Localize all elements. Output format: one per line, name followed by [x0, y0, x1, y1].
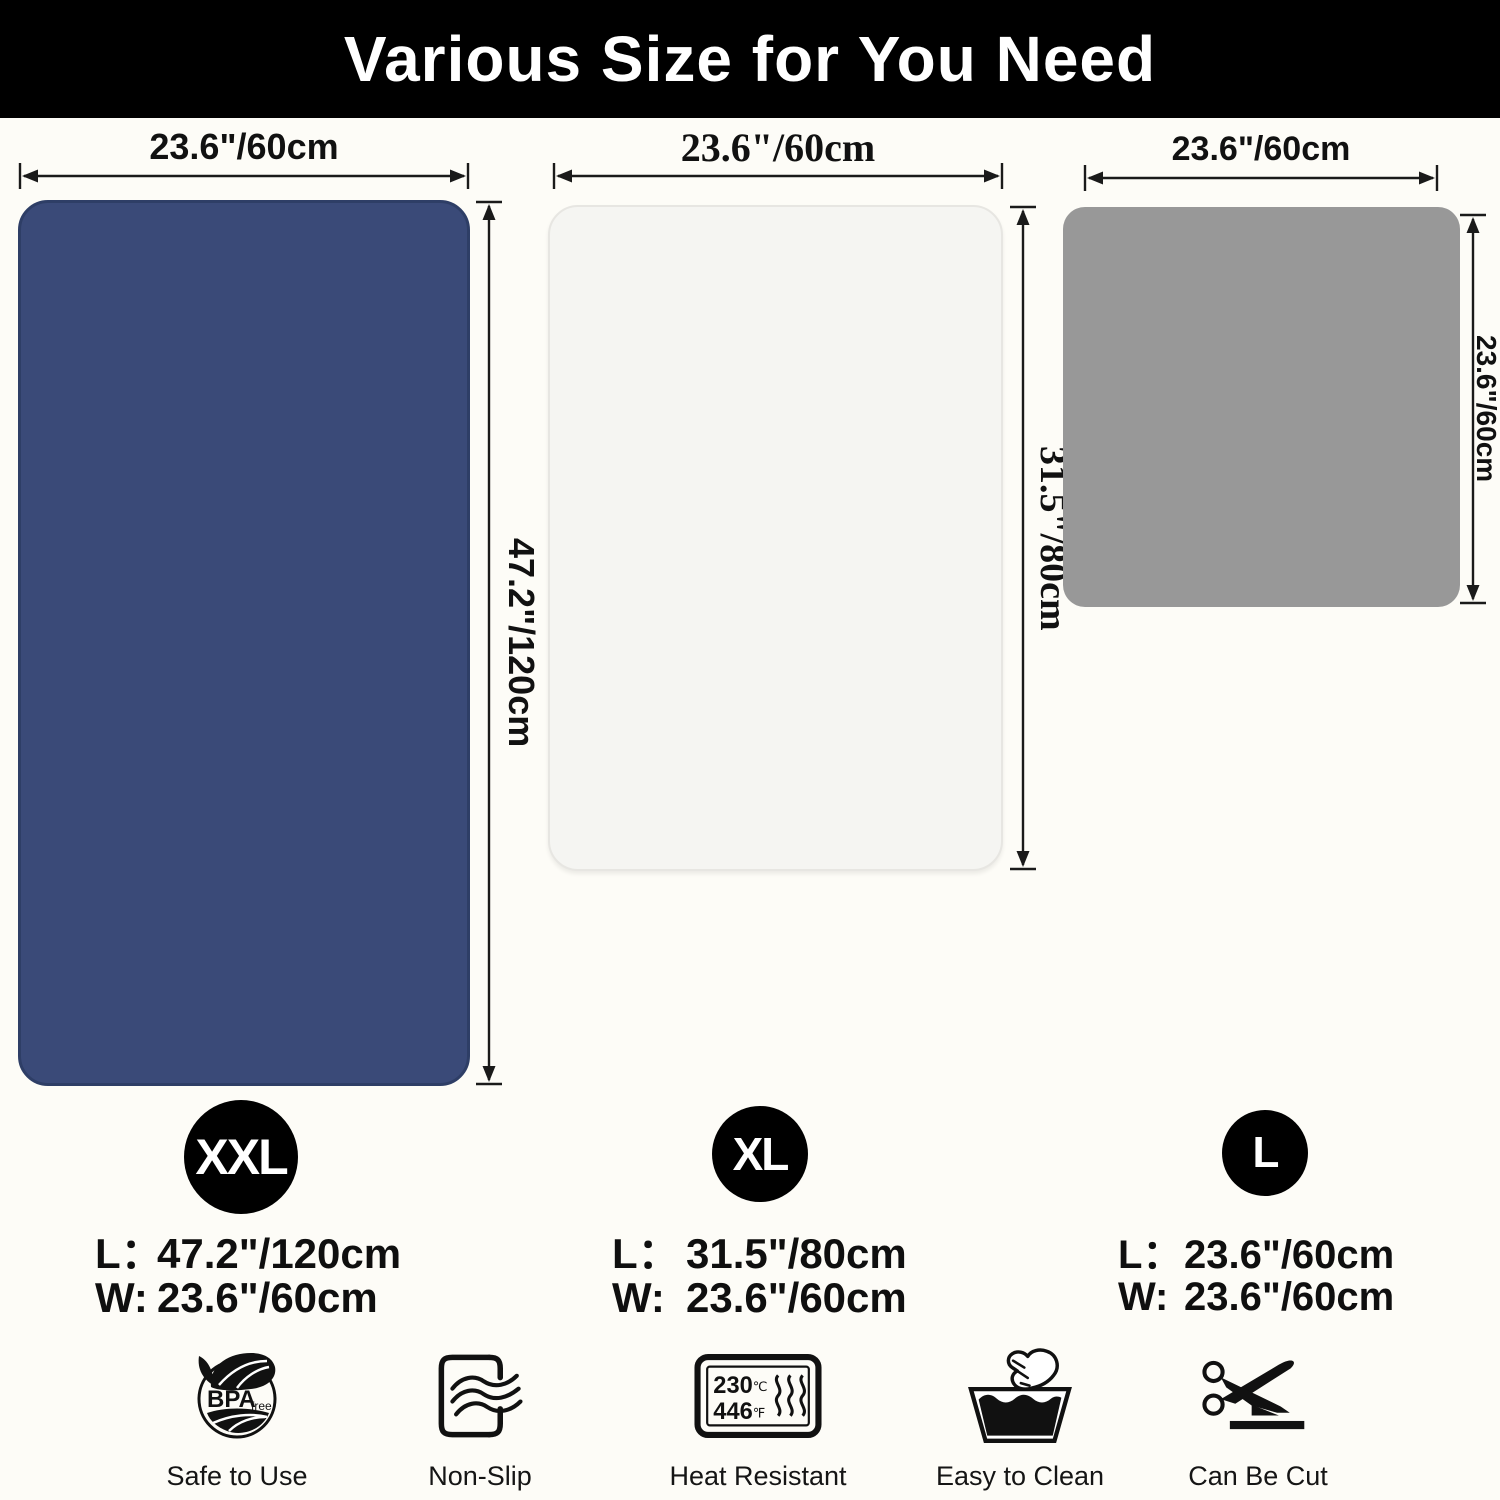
xxl-mat: [18, 200, 470, 1086]
l-height-dimension-label: 23.6"/60cm: [1472, 213, 1500, 605]
xl-mat: [548, 205, 1003, 871]
l-width-arrow: [1083, 165, 1439, 191]
l-spec-length: L： 23.6"/60cm: [1118, 1222, 1394, 1280]
width-value: 23.6"/60cm: [1184, 1275, 1394, 1320]
xxl-height-arrow: [476, 200, 502, 1086]
xl-badge: XL: [712, 1106, 808, 1202]
heat-resistant-icon: 230 ℃ 446 ℉: [692, 1350, 824, 1442]
length-label: L：: [1118, 1222, 1184, 1280]
length-label: L：: [612, 1220, 686, 1281]
l-spec-width: W: 23.6"/60cm: [1118, 1275, 1394, 1320]
xl-badge-text: XL: [733, 1127, 788, 1181]
easy-to-clean-icon: [964, 1344, 1076, 1448]
temp-fahrenheit-value: 446: [713, 1399, 752, 1425]
bpa-text: BPA: [207, 1386, 256, 1413]
length-value: 31.5"/80cm: [686, 1230, 907, 1278]
heat-resistant-icon-box: 230 ℃ 446 ℉: [640, 1338, 876, 1453]
page-title: Various Size for You Need: [344, 22, 1156, 96]
xl-spec-width: W: 23.6"/60cm: [612, 1274, 907, 1322]
xl-width-arrow: [552, 163, 1004, 189]
feature-label-non-slip: Non-Slip: [370, 1461, 590, 1492]
width-label: W:: [1118, 1275, 1184, 1320]
xxl-badge: XXL: [184, 1100, 298, 1214]
l-mat: [1063, 207, 1460, 607]
feature-can-be-cut: Can Be Cut: [1148, 1338, 1368, 1492]
non-slip-icon-box: [370, 1338, 590, 1453]
temp-celsius-unit: ℃: [753, 1379, 768, 1394]
title-banner: Various Size for You Need: [0, 0, 1500, 118]
feature-label-safe-to-use: Safe to Use: [127, 1461, 347, 1492]
bpa-free-icon: BPA free: [185, 1343, 290, 1448]
length-value: 47.2"/120cm: [157, 1230, 401, 1278]
l-width-dimension-label: 23.6"/60cm: [1083, 130, 1439, 169]
feature-label-can-be-cut: Can Be Cut: [1148, 1461, 1368, 1492]
length-value: 23.6"/60cm: [1184, 1233, 1394, 1278]
width-value: 23.6"/60cm: [157, 1274, 378, 1322]
l-badge-text: L: [1253, 1128, 1278, 1178]
xl-spec-length: L： 31.5"/80cm: [612, 1220, 907, 1281]
feature-heat-resistant: 230 ℃ 446 ℉ Heat Resistant: [640, 1338, 876, 1492]
temp-celsius-value: 230: [713, 1372, 752, 1398]
width-value: 23.6"/60cm: [686, 1274, 907, 1322]
bpa-free-icon-box: BPA free: [127, 1338, 347, 1453]
width-label: W:: [95, 1274, 157, 1322]
length-label: L：: [95, 1220, 157, 1281]
xxl-spec-width: W: 23.6"/60cm: [95, 1274, 378, 1322]
width-label: W:: [612, 1274, 686, 1322]
can-be-cut-icon: [1199, 1348, 1317, 1444]
easy-to-clean-icon-box: [910, 1338, 1130, 1453]
feature-easy-to-clean: Easy to Clean: [910, 1338, 1130, 1492]
xxl-spec-length: L： 47.2"/120cm: [95, 1220, 401, 1281]
feature-non-slip: Non-Slip: [370, 1338, 590, 1492]
can-be-cut-icon-box: [1148, 1338, 1368, 1453]
l-badge: L: [1222, 1110, 1308, 1196]
xxl-width-arrow: [18, 163, 470, 189]
feature-label-easy-to-clean: Easy to Clean: [910, 1461, 1130, 1492]
feature-label-heat-resistant: Heat Resistant: [640, 1461, 876, 1492]
infographic-canvas: Various Size for You Need 23.6"/60cm 47.…: [0, 0, 1500, 1500]
feature-safe-to-use: BPA free Safe to Use: [127, 1338, 347, 1492]
non-slip-icon: [434, 1350, 526, 1442]
xxl-badge-text: XXL: [195, 1128, 286, 1186]
temp-fahrenheit-unit: ℉: [753, 1405, 766, 1420]
xxl-width-dimension-label: 23.6"/60cm: [18, 126, 470, 168]
xxl-height-dimension-label: 47.2"/120cm: [500, 200, 542, 1086]
bpa-free-text: free: [251, 1399, 272, 1413]
